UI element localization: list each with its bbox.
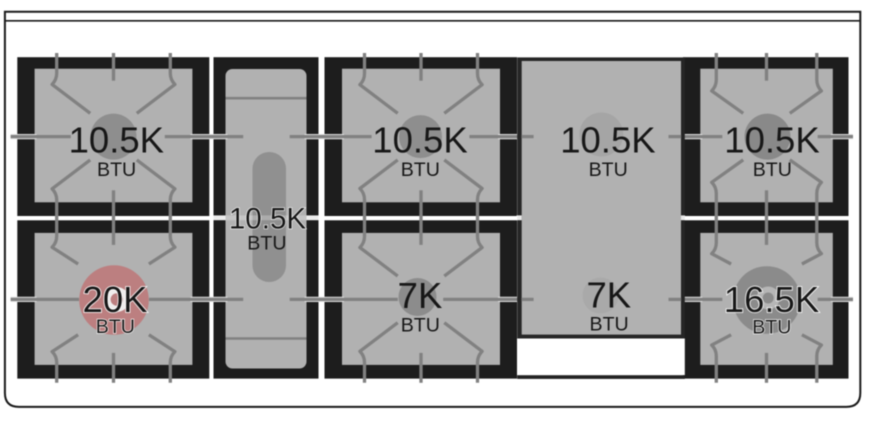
svg-text:20K: 20K	[83, 279, 148, 320]
svg-text:BTU: BTU	[97, 159, 136, 181]
svg-text:BTU: BTU	[752, 316, 791, 338]
svg-text:7K: 7K	[398, 275, 443, 316]
svg-text:10.5K: 10.5K	[560, 119, 655, 160]
svg-text:BTU: BTU	[401, 159, 440, 181]
svg-text:BTU: BTU	[589, 159, 628, 181]
svg-text:BTU: BTU	[590, 314, 629, 336]
svg-text:16.5K: 16.5K	[724, 279, 819, 320]
svg-text:10.5K: 10.5K	[724, 119, 819, 160]
svg-text:10.5K: 10.5K	[229, 202, 307, 235]
svg-text:10.5K: 10.5K	[372, 119, 467, 160]
svg-text:BTU: BTU	[401, 315, 440, 337]
svg-text:BTU: BTU	[753, 159, 792, 181]
svg-text:BTU: BTU	[96, 316, 135, 338]
svg-text:BTU: BTU	[247, 233, 286, 255]
svg-text:10.5K: 10.5K	[69, 119, 164, 160]
svg-text:7K: 7K	[586, 275, 631, 316]
